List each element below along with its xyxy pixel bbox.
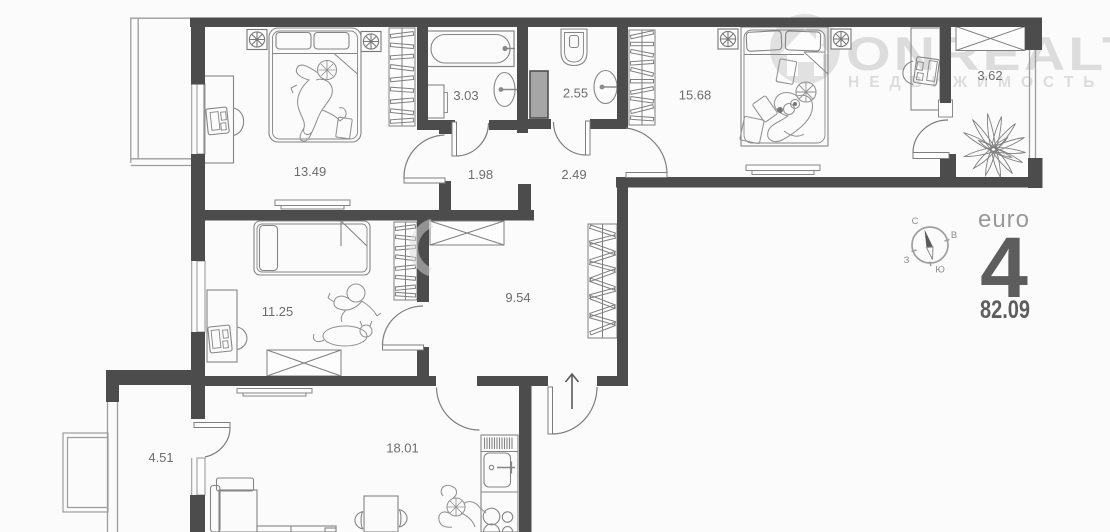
svg-text:Ю: Ю [935, 265, 945, 276]
svg-text:82.09: 82.09 [980, 296, 1030, 324]
svg-text:13.49: 13.49 [294, 164, 327, 179]
svg-text:1.98: 1.98 [468, 167, 493, 182]
svg-text:11.25: 11.25 [262, 304, 294, 319]
svg-text:С: С [912, 216, 919, 227]
svg-text:2.49: 2.49 [561, 167, 586, 182]
svg-text:15.68: 15.68 [679, 88, 712, 103]
svg-text:З: З [904, 255, 910, 266]
svg-text:9.54: 9.54 [505, 290, 530, 305]
svg-text:В: В [951, 230, 957, 241]
svg-text:НЕДВИЖИМОСТЬ: НЕДВИЖИМОСТЬ [848, 74, 1104, 91]
svg-text:2.55: 2.55 [563, 86, 588, 101]
svg-text:3.03: 3.03 [453, 88, 478, 103]
svg-text:4.51: 4.51 [148, 450, 173, 465]
svg-text:3.62: 3.62 [977, 68, 1002, 83]
svg-text:18.01: 18.01 [386, 441, 419, 456]
